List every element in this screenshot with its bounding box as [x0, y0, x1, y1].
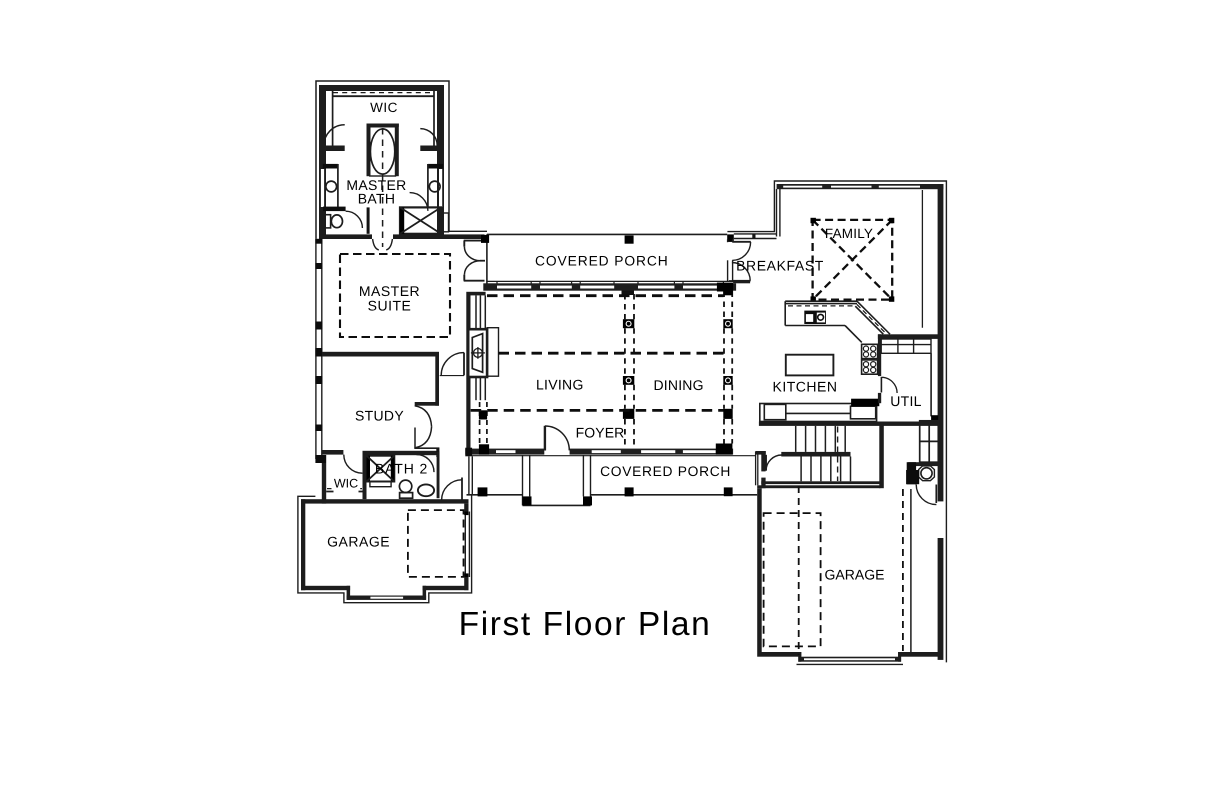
- svg-text:SUITE: SUITE: [368, 298, 412, 314]
- svg-text:BATH 2: BATH 2: [375, 461, 428, 477]
- svg-text:KITCHEN: KITCHEN: [773, 379, 838, 395]
- svg-text:DINING: DINING: [653, 377, 703, 393]
- svg-text:STUDY: STUDY: [355, 408, 404, 424]
- svg-text:COVERED PORCH: COVERED PORCH: [600, 464, 731, 479]
- svg-text:GARAGE: GARAGE: [825, 567, 885, 583]
- svg-text:First Floor Plan: First Floor Plan: [459, 606, 712, 643]
- svg-text:BREAKFAST: BREAKFAST: [736, 258, 824, 274]
- svg-text:LIVING: LIVING: [536, 377, 584, 393]
- svg-text:WIC: WIC: [370, 100, 398, 115]
- svg-text:WIC: WIC: [334, 477, 358, 491]
- svg-text:FAMILY: FAMILY: [825, 226, 873, 241]
- svg-text:BATH: BATH: [358, 191, 396, 207]
- svg-text:UTIL: UTIL: [890, 393, 922, 409]
- svg-text:GARAGE: GARAGE: [327, 534, 390, 550]
- svg-text:COVERED PORCH: COVERED PORCH: [535, 253, 669, 268]
- svg-text:FOYER: FOYER: [576, 425, 625, 441]
